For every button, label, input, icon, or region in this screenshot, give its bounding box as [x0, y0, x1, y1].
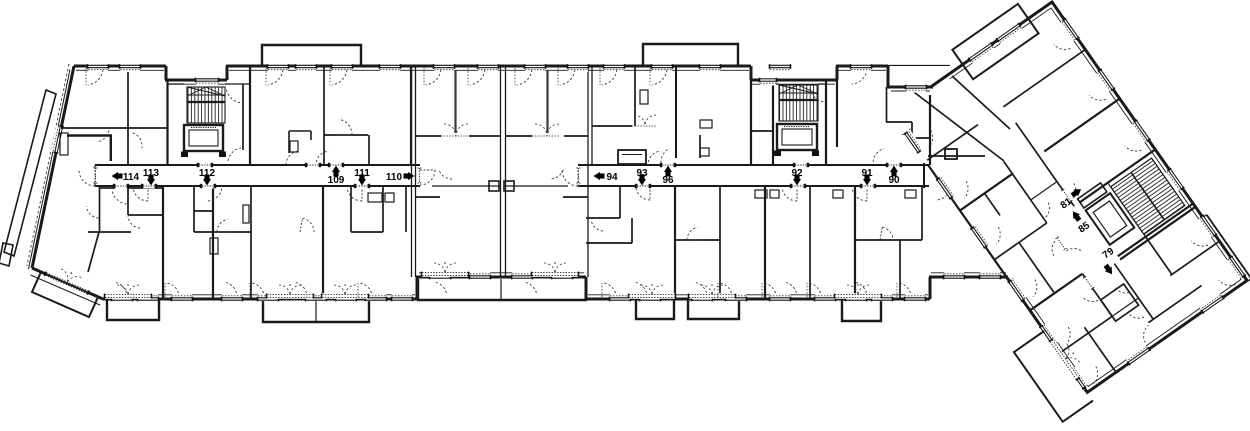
svg-text:96: 96: [662, 175, 674, 186]
svg-text:109: 109: [328, 175, 345, 186]
svg-text:114: 114: [123, 172, 140, 183]
svg-text:94: 94: [606, 172, 618, 183]
svg-text:90: 90: [888, 175, 900, 186]
svg-text:110: 110: [386, 172, 403, 183]
